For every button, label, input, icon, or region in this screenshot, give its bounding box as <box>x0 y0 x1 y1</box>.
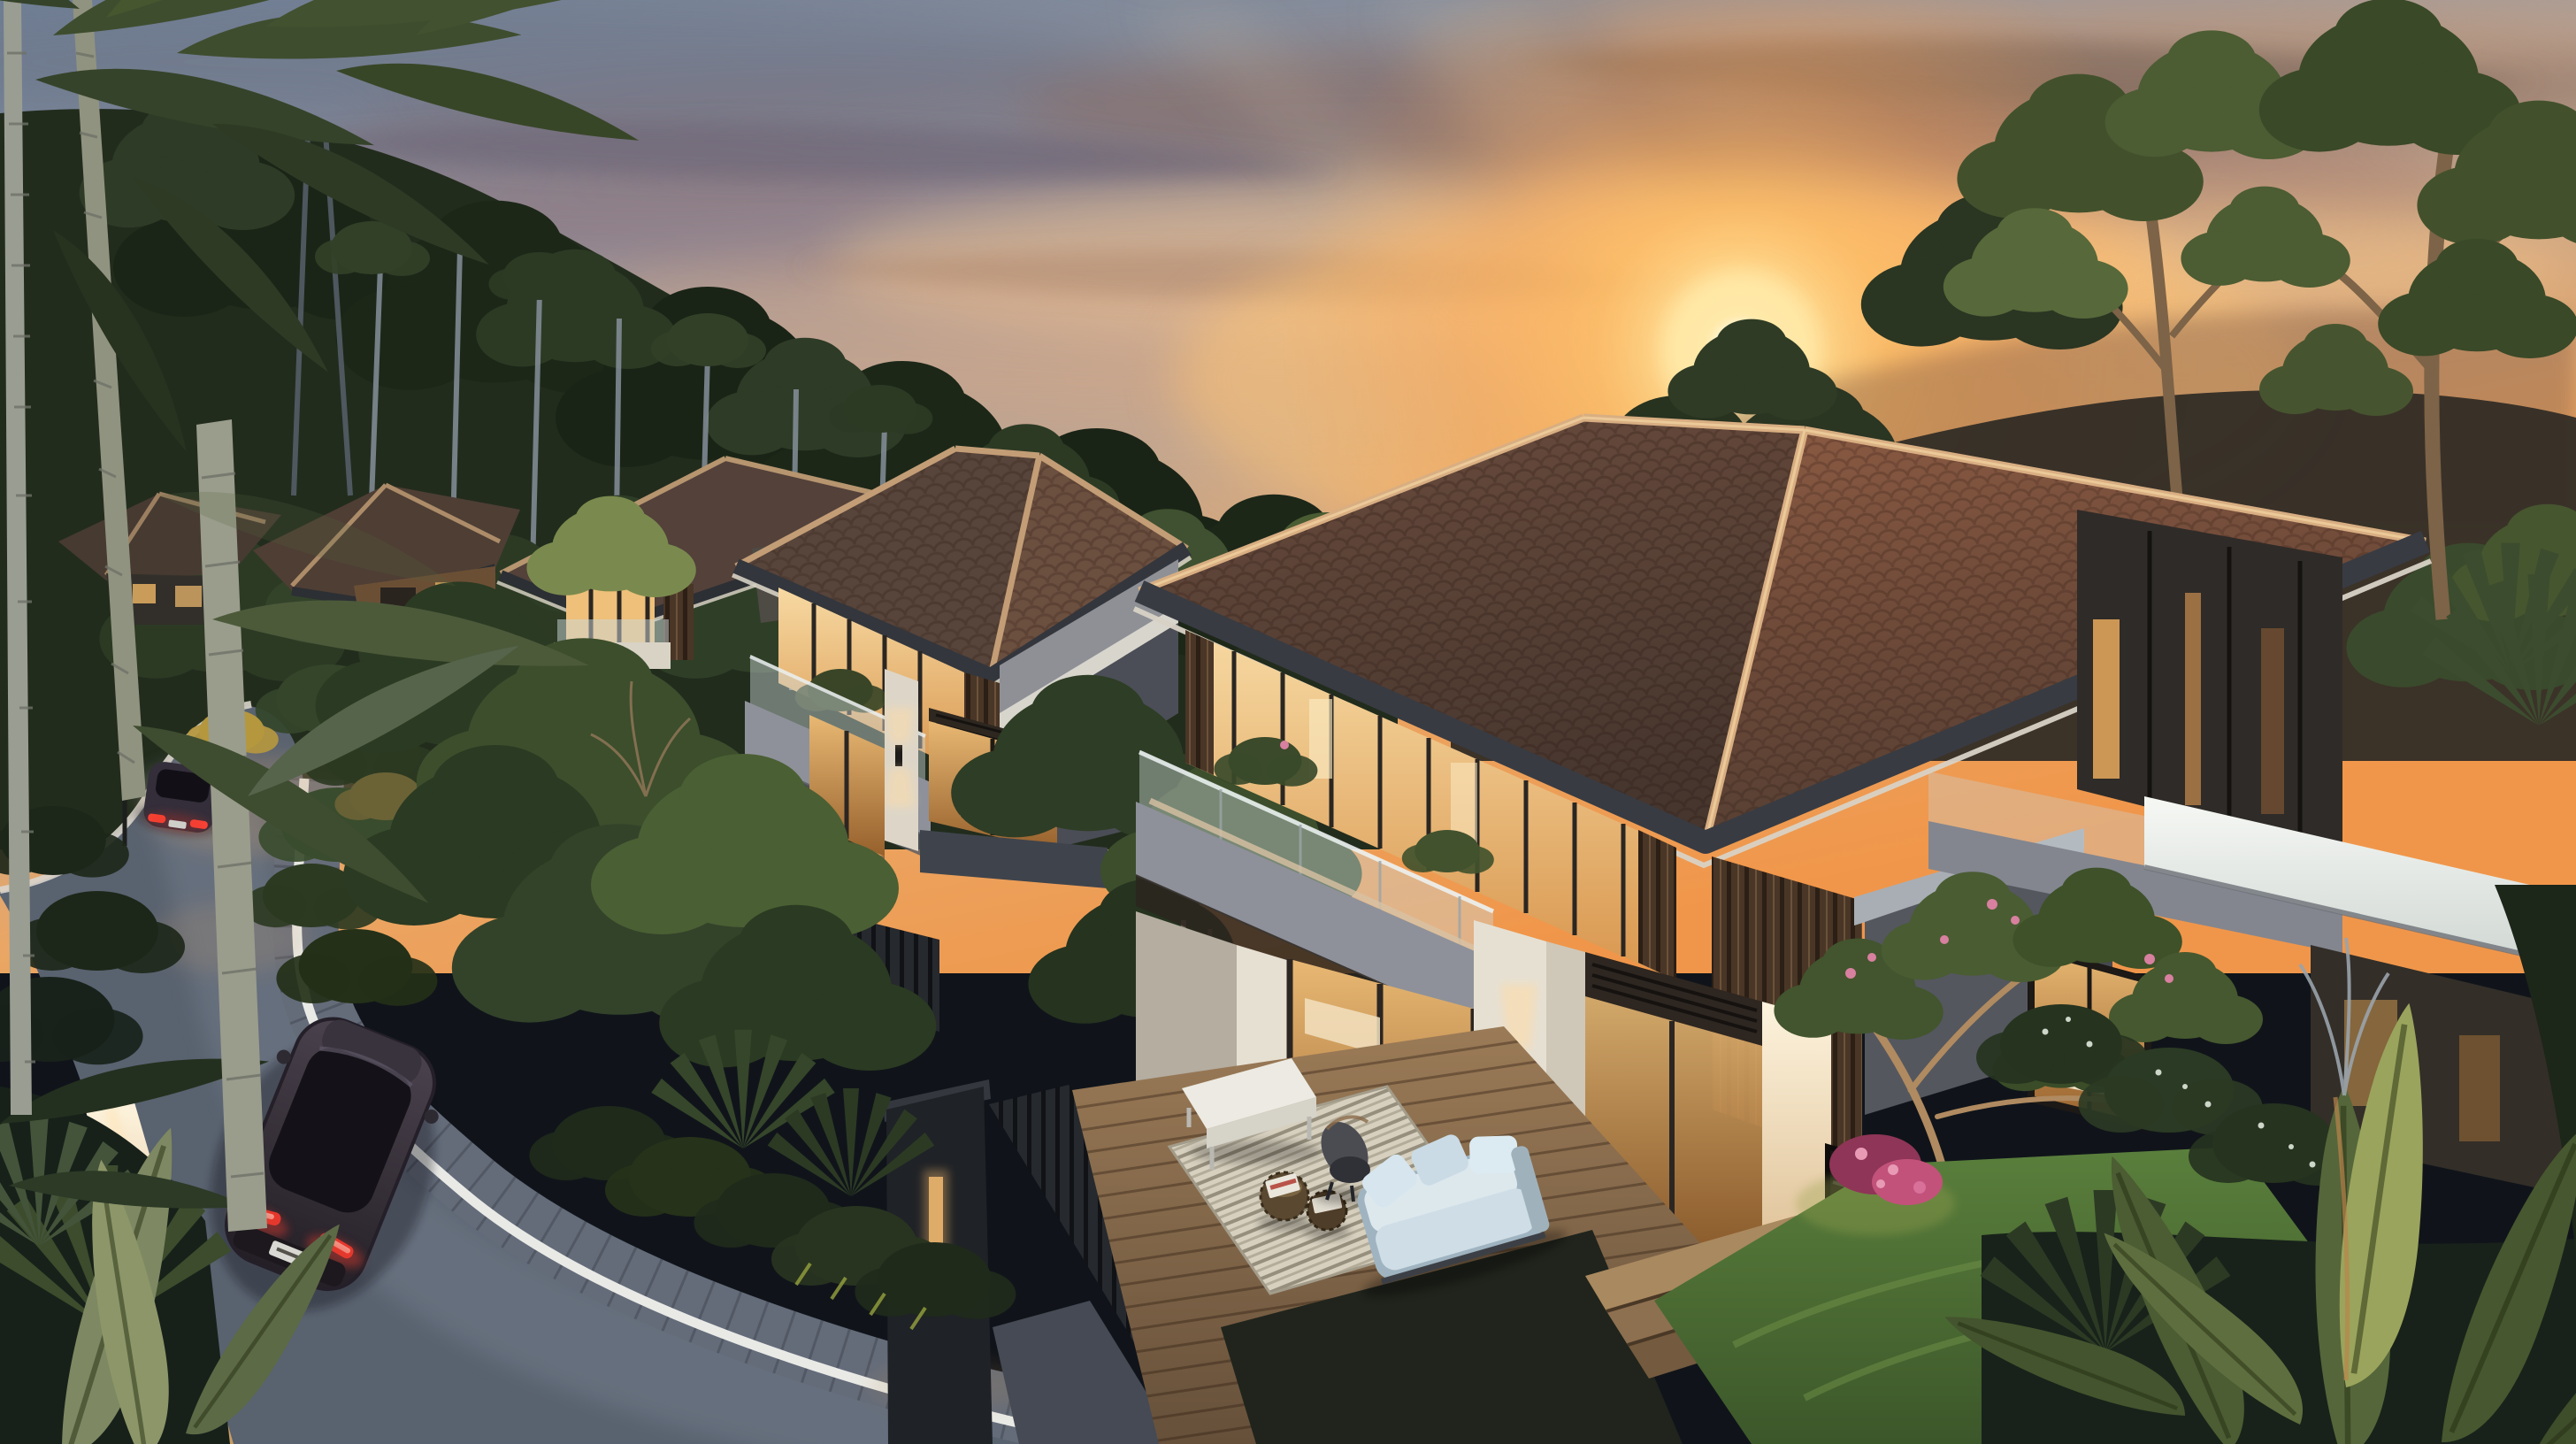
sofa-pillow <box>1469 1135 1518 1174</box>
villa-estate-sunset-rendering <box>0 0 2576 1444</box>
wall-sconce <box>895 745 902 766</box>
warm-window <box>133 584 156 603</box>
warm-window <box>175 586 202 607</box>
warm-window <box>2093 619 2120 779</box>
